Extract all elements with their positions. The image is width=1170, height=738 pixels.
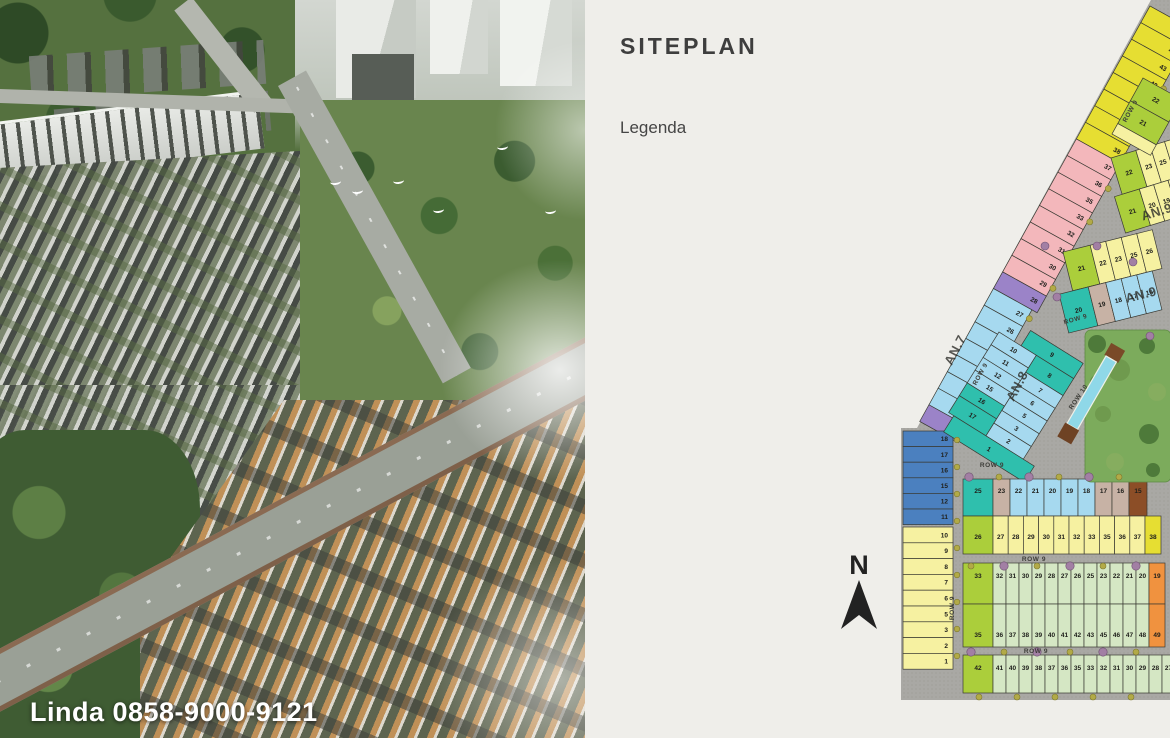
lot-number: 22 [1113,573,1121,580]
lot-number: 48 [1139,632,1147,639]
lot-number: 47 [1126,632,1134,639]
photo-fog [440,260,585,480]
row-label: ROW 9 [1022,556,1046,563]
lot-number: 32 [996,573,1004,580]
tree-icon [954,572,960,578]
lot [1162,655,1170,693]
lot [1045,655,1058,693]
tree-icon [954,545,960,551]
tree-icon [1139,338,1155,354]
lot-number: 35 [1103,534,1111,541]
lot-number: 38 [1022,632,1030,639]
lot [1006,604,1019,647]
lot-number: 26 [1074,573,1082,580]
tree-icon [1014,694,1020,700]
lot-number: 31 [1009,573,1017,580]
lot [1149,604,1165,647]
lot-number: 16 [941,467,949,474]
lot-number: 37 [1134,534,1142,541]
lot-number: 15 [1134,488,1142,495]
lot-number: 36 [1061,665,1069,672]
lot-number: 11 [941,514,948,521]
lot-number: 28 [1152,665,1160,672]
lot-number: 33 [974,573,982,580]
tree-icon [954,491,960,497]
lot-number: 29 [1027,534,1035,541]
lot [1110,655,1123,693]
lot [1061,479,1078,516]
photo-fog [430,560,585,738]
lot [993,655,1006,693]
lot-number: 6 [944,596,948,603]
tree-icon [1132,562,1140,570]
lot-number: 2 [944,643,948,650]
lot [1084,655,1097,693]
lot-number: 21 [1126,573,1134,580]
lot [1129,479,1147,516]
lot [963,563,993,604]
west-strip-yellow: 1098765321 [903,527,953,669]
row-label: ROW 9 [1024,648,1048,655]
siteplan-panel: SITEPLAN Legenda N 464543424140393837363… [585,0,1170,738]
lot-number: 27 [997,534,1005,541]
lot-number: 36 [996,632,1004,639]
tree-icon [1041,242,1049,250]
lot [1045,604,1058,647]
lot-number: 5 [944,611,948,618]
lot-number: 40 [1048,632,1056,639]
lot [1032,563,1045,604]
tree-icon [965,473,973,481]
lot-number: 43 [1087,632,1095,639]
tree-icon [954,518,960,524]
lot-number: 20 [1139,573,1147,580]
lot-number: 29 [1139,665,1147,672]
lot-number: 9 [944,548,948,555]
lot-number: 28 [1048,573,1056,580]
lot [1136,604,1149,647]
lot [1136,655,1149,693]
lot-number: 17 [1100,488,1108,495]
lot [1058,604,1071,647]
lot-number: 17 [941,452,949,459]
lot-number: 15 [941,483,949,490]
tree-icon [976,694,982,700]
tree-icon [954,626,960,632]
lot-number: 19 [1066,488,1074,495]
tree-icon [1034,563,1040,569]
lot-number: 32 [1073,534,1081,541]
lot-number: 18 [1083,488,1091,495]
lot-number: 22 [1015,488,1023,495]
lot-number: 18 [941,436,949,443]
tree-icon [1090,694,1096,700]
row-label: ROW 9 [949,596,956,620]
tree-icon [1099,648,1107,656]
lot-number: 37 [1009,632,1017,639]
tree-icon [1025,473,1033,481]
lot-number: 23 [1100,573,1108,580]
lot [1019,563,1032,604]
tree-icon [1095,406,1111,422]
aerial-photo: Linda 0858-9000-9121 [0,0,585,738]
lot [1149,655,1162,693]
lot [1032,604,1045,647]
lot-number: 31 [1113,665,1121,672]
tree-icon [1100,563,1106,569]
lot-number: 49 [1153,632,1161,639]
lot [1045,563,1058,604]
tree-icon [1133,649,1139,655]
lot-number: 16 [1117,488,1125,495]
lot-number: 8 [944,564,948,571]
siteplan-map: 4645434241403938373635333231302928272625… [895,0,1170,738]
tree-icon [1129,258,1137,266]
tree-icon [1067,649,1073,655]
lot-number: 28 [1012,534,1020,541]
tree-icon [1093,242,1101,250]
row3: 424140393837363533323130292827 [963,655,1170,693]
lot [1058,655,1071,693]
lot-number: 37 [1048,665,1056,672]
lot-number: 31 [1058,534,1066,541]
lot-number: 42 [1074,632,1082,639]
north-indicator: N [836,550,882,635]
lot [1110,563,1123,604]
lot [1084,563,1097,604]
lot-number: 25 [974,488,982,495]
lot [1097,655,1110,693]
contact-caption: Linda 0858-9000-9121 [30,697,318,728]
lot-number: 26 [974,534,982,541]
tree-icon [1139,424,1159,444]
lot-number: 42 [974,665,982,672]
lot-number: 35 [1074,665,1082,672]
lot-number: 32 [1100,665,1108,672]
lot [963,604,993,647]
row-label: ROW 9 [980,462,1004,469]
lot [1084,604,1097,647]
legend-title: Legenda [620,118,686,138]
lot-number: 30 [1126,665,1134,672]
tree-icon [1116,474,1122,480]
lot [993,479,1010,516]
lot-number: 30 [1022,573,1030,580]
lot [963,655,993,693]
lot [1123,604,1136,647]
lot [1095,479,1112,516]
row2-bottom: 3536373839404142434546474849 [963,604,1165,647]
lot-number: 33 [1088,534,1096,541]
lot-number: 3 [944,627,948,634]
lot-number: 33 [1087,665,1095,672]
lot-number: 7 [944,580,948,587]
tree-icon [1085,473,1093,481]
tree-icon [1106,453,1124,471]
west-strip-blue: 181716151211 [903,431,953,525]
lot-number: 36 [1119,534,1127,541]
lot-number: 35 [974,632,982,639]
tree-icon [1148,383,1166,401]
lot [1110,604,1123,647]
tree-icon [1000,562,1008,570]
lot [1006,563,1019,604]
tree-icon [967,648,975,656]
tree-icon [954,437,960,443]
tree-icon [1066,562,1074,570]
lot-number: 20 [1049,488,1057,495]
lot-number: 41 [996,665,1004,672]
lot [1010,479,1027,516]
lot [1149,563,1165,604]
tree-icon [954,464,960,470]
tree-icon [1001,649,1007,655]
lot [1071,604,1084,647]
lot-number: 10 [941,532,949,539]
north-arrow-icon [840,580,878,630]
lot-number: 30 [1043,534,1051,541]
lot-number: 27 [1061,573,1069,580]
lot [1032,655,1045,693]
lot [1027,479,1044,516]
lot [1071,655,1084,693]
tree-icon [1052,694,1058,700]
lot-number: 38 [1035,665,1043,672]
lot [1123,655,1136,693]
lot-number: 40 [1009,665,1017,672]
lot-number: 45 [1100,632,1108,639]
lot-number: 12 [941,499,949,506]
lot [993,604,1006,647]
tree-icon [1146,463,1160,477]
lot-number: 1 [944,659,948,666]
lot [1112,479,1129,516]
lot-number: 29 [1035,573,1043,580]
lot-number: 38 [1149,534,1157,541]
lot [1019,604,1032,647]
lot-number: 46 [1113,632,1121,639]
row1-bottom: 262728293031323335363738 [963,516,1161,554]
lot-number: 41 [1061,632,1069,639]
tree-icon [968,563,974,569]
tree-icon [1128,694,1134,700]
tree-icon [1053,293,1061,301]
lot [1044,479,1061,516]
photo-fog [495,40,585,220]
north-label: N [836,550,882,580]
row1-top: 25232221201918171615 [963,479,1147,516]
page-title: SITEPLAN [620,33,758,60]
tree-icon [1056,474,1062,480]
lot-number: 27 [1165,665,1170,672]
tree-icon [954,653,960,659]
tree-icon [1146,332,1154,340]
lot [1019,655,1032,693]
tree-icon [996,474,1002,480]
lot-number: 19 [1153,573,1161,580]
lot-number: 21 [1032,488,1040,495]
lot-number: 39 [1022,665,1030,672]
lot-number: 25 [1087,573,1095,580]
lot [963,479,993,516]
lot-number: 23 [998,488,1006,495]
lot-number: 39 [1035,632,1043,639]
tree-icon [1088,335,1106,353]
lot [1078,479,1095,516]
photo-highrise [430,0,488,74]
lot [1006,655,1019,693]
lot [1097,604,1110,647]
